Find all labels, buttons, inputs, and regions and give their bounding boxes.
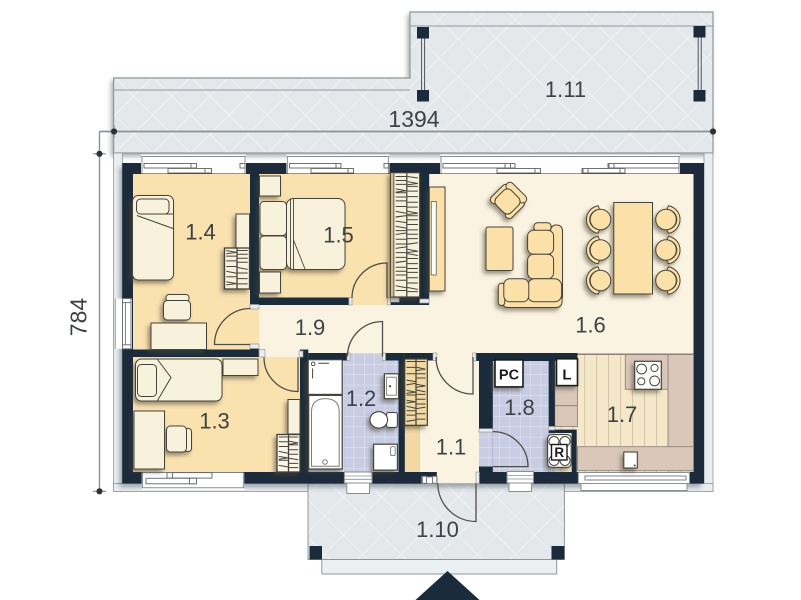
- svg-text:784: 784: [66, 298, 92, 337]
- svg-text:1.4: 1.4: [185, 220, 216, 245]
- svg-text:1.10: 1.10: [416, 517, 459, 542]
- svg-text:1.3: 1.3: [199, 409, 230, 434]
- svg-text:L: L: [562, 367, 571, 384]
- svg-text:1.5: 1.5: [323, 223, 354, 248]
- svg-text:1.1: 1.1: [436, 435, 467, 460]
- svg-text:PC: PC: [499, 368, 520, 384]
- svg-text:R: R: [554, 445, 564, 460]
- svg-text:1.11: 1.11: [545, 77, 586, 102]
- svg-text:1.9: 1.9: [295, 315, 326, 340]
- svg-text:1394: 1394: [388, 106, 439, 132]
- svg-text:1.8: 1.8: [504, 395, 535, 420]
- svg-text:1.2: 1.2: [346, 386, 377, 411]
- svg-text:1.7: 1.7: [607, 402, 638, 427]
- svg-text:1.6: 1.6: [575, 313, 606, 338]
